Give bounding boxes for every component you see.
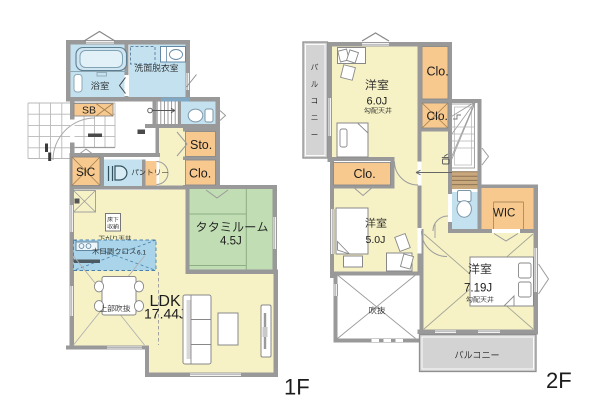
svg-text:4.5J: 4.5J <box>220 236 242 248</box>
svg-text:5.0J: 5.0J <box>366 234 386 246</box>
svg-text:SIC: SIC <box>76 167 95 179</box>
svg-text:Clo.: Clo. <box>189 167 211 181</box>
svg-text:17.44J: 17.44J <box>144 306 186 322</box>
svg-text:6.1: 6.1 <box>137 250 146 257</box>
svg-text:Clo.: Clo. <box>427 109 448 123</box>
svg-text:1F: 1F <box>284 375 310 400</box>
svg-text:7.19J: 7.19J <box>464 283 492 295</box>
svg-text:6.0J: 6.0J <box>367 96 388 108</box>
svg-text:Sto.: Sto. <box>190 138 212 152</box>
svg-text:WIC: WIC <box>493 208 515 220</box>
svg-text:Clo.: Clo. <box>354 167 376 181</box>
svg-text:2F: 2F <box>546 368 572 393</box>
svg-text:SB: SB <box>82 105 96 117</box>
svg-text:Clo.: Clo. <box>427 65 449 79</box>
